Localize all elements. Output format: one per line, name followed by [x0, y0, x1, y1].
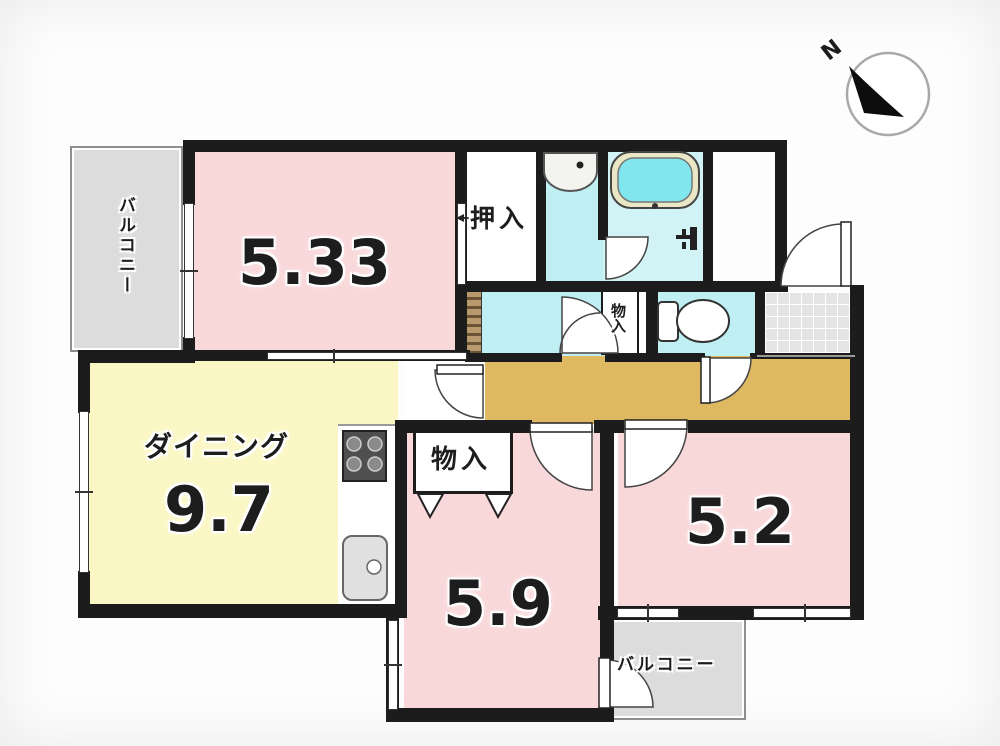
- toilet-tank-icon: [658, 302, 678, 341]
- toilet-door-leaf: [701, 357, 710, 403]
- balcony-top-left-label: バルコニー: [116, 196, 133, 296]
- balcony-bottom-right-label: バルコニー: [617, 657, 717, 674]
- oshiire-arrow-icon: [456, 214, 464, 222]
- dining-name-label: ダイニング: [144, 433, 289, 461]
- dining-door-leaf: [437, 365, 483, 374]
- washbasin-drain-icon: [577, 162, 584, 169]
- room52-door-arc: [625, 425, 687, 487]
- washbasin-icon: [544, 153, 597, 191]
- balcony-door-leaf: [599, 658, 610, 708]
- room-59-area-label: 5.9: [443, 573, 553, 635]
- storage-room59-label: 物入: [431, 447, 491, 473]
- room59-door-leaf: [530, 423, 592, 432]
- toilet-bowl-icon: [677, 300, 729, 342]
- bathtub-drain-icon: [652, 203, 658, 209]
- folding-door-icon: [486, 494, 511, 517]
- oshiire-label: 押入: [470, 206, 528, 231]
- stove-burner-icon: [368, 457, 382, 471]
- floor-plan: バルコニー 5.33 押入 ダイニング 9.7 物入 物入 5.9 5.2 バル…: [0, 0, 1000, 746]
- stove-burner-icon: [347, 457, 361, 471]
- dining-area-label: 9.7: [164, 479, 274, 541]
- dining-door-arc: [435, 370, 483, 418]
- bathtub-water: [618, 158, 692, 202]
- faucet-icon: [682, 242, 686, 249]
- folding-door-icon: [418, 494, 443, 517]
- room-533-area-label: 5.33: [238, 232, 391, 294]
- room-52-area-label: 5.2: [685, 491, 795, 553]
- entrance-door-arc: [781, 224, 843, 286]
- faucet-icon: [682, 229, 686, 236]
- storage-hallway-label: 物入: [610, 303, 625, 333]
- stove-burner-icon: [368, 437, 382, 451]
- toilet-door-arc: [706, 358, 751, 403]
- bathroom-door-arc: [606, 237, 648, 279]
- entrance-door-leaf: [841, 222, 851, 286]
- kitchen-faucet-icon: [367, 560, 381, 574]
- room52-door-leaf: [625, 420, 687, 429]
- stove-burner-icon: [347, 437, 361, 451]
- room59-door-arc: [530, 428, 592, 490]
